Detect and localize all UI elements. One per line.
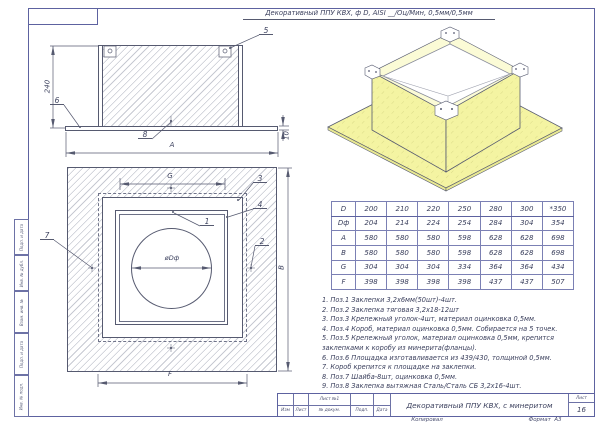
size-cell: 304 (511, 216, 542, 231)
size-cell: 698 (542, 231, 573, 246)
margin-field-inv-dup: Инв. № дубл. (14, 255, 29, 291)
size-cell: 250 (449, 202, 480, 217)
size-cell: 598 (449, 231, 480, 246)
callout-2: 2 (255, 237, 269, 246)
copied-label: Копировал (382, 417, 472, 423)
size-cell: 507 (542, 275, 573, 290)
title-block: Лист №1 Изм Лист № докум. Подп. Дата Дек… (277, 393, 595, 417)
size-cell: 354 (542, 216, 573, 231)
note-line: 7. Короб крепится к площадке на заклепки… (322, 363, 592, 373)
sheet-label: Лист (569, 394, 594, 403)
size-cell: 628 (511, 245, 542, 260)
note-line: 2. Поз.2 Заклепка тяговая 3,2х18-12шт (322, 306, 592, 316)
size-row-label: Dф (332, 216, 356, 231)
size-cell: *350 (542, 202, 573, 217)
size-table-row: F398398398398437437507 (332, 275, 574, 290)
tb-label-sign: Подп. (351, 406, 374, 417)
size-table: D200210220250280300*350Dф204214224254284… (331, 201, 574, 290)
size-cell: 364 (511, 260, 542, 275)
size-table-row: D200210220250280300*350 (332, 202, 574, 217)
format-label: Формат А3 (505, 417, 585, 423)
note-line: 6. Поз.6 Площадка изготавливается из 439… (322, 354, 592, 364)
drawing-sheet: Подп. и дата Инв. № дубл. Взам. инв. № П… (0, 0, 600, 425)
margin-field-sign-date-top: Подп. и дата (14, 219, 29, 255)
dim-label-A: A (162, 141, 182, 150)
size-cell: 580 (356, 245, 387, 260)
size-cell: 580 (356, 231, 387, 246)
dim-label-B: B (278, 260, 287, 276)
margin-field-label: Взам. инв. № (19, 298, 24, 325)
note-line: 3. Поз.3 Крепежный уголок-4шт, материал … (322, 315, 592, 325)
size-cell: 628 (480, 245, 511, 260)
size-cell: 437 (511, 275, 542, 290)
size-cell: 698 (542, 245, 573, 260)
size-row-label: G (332, 260, 356, 275)
format-value: А3 (554, 417, 561, 423)
size-cell: 204 (356, 216, 387, 231)
callout-5: 5 (259, 26, 273, 35)
size-cell: 280 (480, 202, 511, 217)
size-cell: 334 (449, 260, 480, 275)
size-cell: 214 (387, 216, 418, 231)
title-block-top-row: Лист №1 (278, 394, 390, 406)
tb-label-docnum: № докум. (309, 406, 351, 417)
dim-label-G: G (160, 172, 180, 181)
size-cell: 628 (480, 231, 511, 246)
callout-3: 3 (253, 174, 267, 183)
size-cell: 398 (356, 275, 387, 290)
sheet-number-box: Лист 16 (568, 394, 594, 416)
tb-label-list: Лист (294, 406, 309, 417)
corner-reference-box (28, 8, 98, 25)
tb-label-izm: Изм (278, 406, 294, 417)
margin-field-label: Подп. и дата (19, 223, 24, 250)
margin-field-vzam-inv: Взам. инв. № (14, 291, 29, 333)
callout-4: 4 (253, 200, 267, 209)
tb-label-date: Дата (374, 406, 390, 417)
size-cell: 220 (418, 202, 449, 217)
size-cell: 304 (418, 260, 449, 275)
size-cell: 200 (356, 202, 387, 217)
tb-cell-empty (374, 394, 390, 405)
size-table-row: Dф204214224254284304354 (332, 216, 574, 231)
dim-label-F: F (160, 370, 180, 379)
title-block-grid: Лист №1 Изм Лист № докум. Подп. Дата (278, 394, 390, 416)
size-table-row: B580580580598628628698 (332, 245, 574, 260)
dim-label-height-240: 240 (44, 77, 53, 97)
note-line: 1. Поз.1 Заклепки 3,2х6мм(50шт)-4шт. (322, 296, 592, 306)
size-cell: 580 (387, 245, 418, 260)
size-table-row: A580580580598628628698 (332, 231, 574, 246)
title-block-label-row: Изм Лист № докум. Подп. Дата (278, 406, 390, 417)
size-cell: 398 (387, 275, 418, 290)
dim-label-plate-10: 10 (283, 128, 292, 144)
size-row-label: D (332, 202, 356, 217)
size-cell: 304 (356, 260, 387, 275)
margin-field-inv-orig: Инв. № подл. (14, 375, 29, 417)
note-line: 4. Поз.4 Короб, материал оцинковка 0,5мм… (322, 325, 592, 335)
notes-list: 1. Поз.1 Заклепки 3,2х6мм(50шт)-4шт.2. П… (322, 296, 592, 392)
size-cell: 598 (449, 245, 480, 260)
size-cell: 437 (480, 275, 511, 290)
size-cell: 628 (511, 231, 542, 246)
size-row-label: A (332, 231, 356, 246)
callout-7: 7 (40, 231, 54, 240)
size-row-label: B (332, 245, 356, 260)
margin-field-label: Подп. и дата (19, 340, 24, 367)
callout-1: 1 (200, 217, 214, 226)
callout-8: 8 (138, 130, 152, 139)
size-cell: 580 (418, 231, 449, 246)
document-title: Декоративный ППУ КВХ, с минеритом (390, 394, 568, 416)
margin-field-label: Инв. № подл. (19, 382, 24, 410)
note-line: 8. Поз.7 Шайба-8шт, оцинковка 0,5мм. (322, 373, 592, 383)
tb-cell-empty (294, 394, 309, 405)
size-cell: 300 (511, 202, 542, 217)
note-line: 5. Поз.5 Крепежный уголок, материал оцин… (322, 334, 592, 353)
size-cell: 224 (418, 216, 449, 231)
size-cell: 398 (449, 275, 480, 290)
dim-label-diameter: øDф (150, 254, 194, 263)
margin-field-label: Инв. № дубл. (19, 259, 24, 286)
size-cell: 284 (480, 216, 511, 231)
size-cell: 580 (387, 231, 418, 246)
size-cell: 398 (418, 275, 449, 290)
size-cell: 580 (418, 245, 449, 260)
margin-field-sign-date-bottom: Подп. и дата (14, 333, 29, 375)
drawing-header-title: Декоративный ППУ КВХ, ф D, AISI __/Оц/Ми… (243, 9, 495, 20)
size-cell: 364 (480, 260, 511, 275)
note-line: 9. Поз.8 Заклепка вытяжная Сталь/Сталь С… (322, 382, 592, 392)
sheet-value: 16 (569, 403, 594, 416)
size-cell: 254 (449, 216, 480, 231)
size-row-label: F (332, 275, 356, 290)
size-cell: 210 (387, 202, 418, 217)
callout-6: 6 (50, 96, 64, 105)
tb-sheet-ref: Лист №1 (309, 394, 351, 405)
size-cell: 434 (542, 260, 573, 275)
tb-cell-empty (278, 394, 294, 405)
format-word: Формат (528, 417, 550, 423)
size-table-row: G304304304334364364434 (332, 260, 574, 275)
tb-cell-empty (351, 394, 374, 405)
size-cell: 304 (387, 260, 418, 275)
